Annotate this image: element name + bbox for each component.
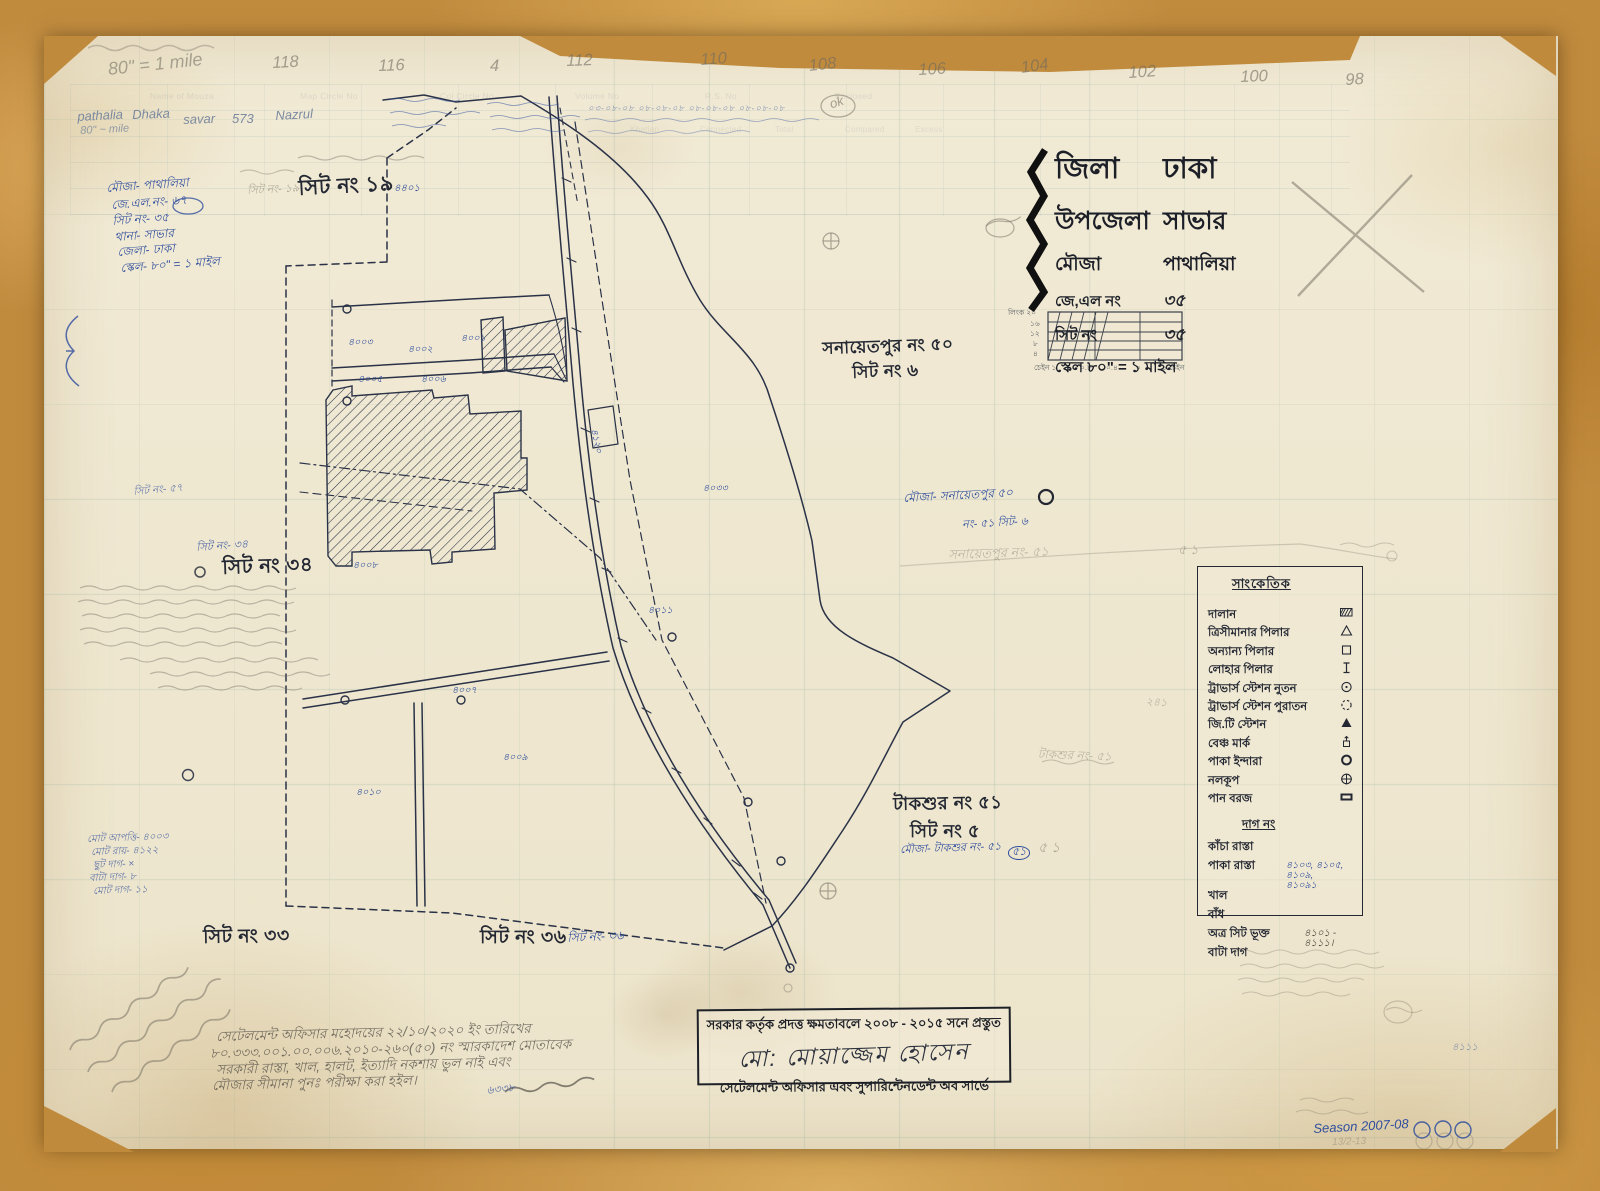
form-number: 573 xyxy=(232,112,254,126)
ghost-col-2: Map Circle No xyxy=(300,92,358,101)
title-label: মৌজা xyxy=(1055,250,1163,282)
grid-sheet-number: 106 xyxy=(918,61,946,80)
legend-road-item: খাল xyxy=(1208,889,1354,904)
legend-item: ত্রিসীমানার পিলার xyxy=(1208,624,1354,642)
legend-item: পান বরজ xyxy=(1208,790,1354,808)
legend-road-item: অত্র সিট ভূক্ত৪১০১ - ৪১১১। xyxy=(1208,927,1354,942)
form-upazila: savar xyxy=(183,112,215,127)
pencil-51: ৫ ১ xyxy=(1178,543,1198,557)
title-rows: জিলাঢাকাউপজেলাসাভারমৌজাপাথালিয়াজে,এল নং… xyxy=(1055,146,1315,350)
legend-item: ট্রাভার্স স্টেশন নুতন xyxy=(1208,680,1354,698)
legend-item-label: জি.টি স্টেশন xyxy=(1208,718,1266,732)
title-block: জিলাঢাকাউপজেলাসাভারমৌজাপাথালিয়াজে,এল নং… xyxy=(1055,146,1315,381)
ghost-col-10: Compared xyxy=(845,126,885,134)
legend-road-item: বাঁধ xyxy=(1208,908,1354,923)
pencil-241: ২৪১ xyxy=(1145,697,1167,710)
legend-road-item: বাটা দাগ xyxy=(1208,946,1354,961)
title-label: জে,এল নং xyxy=(1055,290,1163,315)
legend-item-label: বেঞ্চ মার্ক xyxy=(1208,737,1250,751)
sheet33-label: সিট নং ৩৩ xyxy=(203,926,290,947)
title-value: পাথালিয়া xyxy=(1163,250,1236,282)
stamp-box: সরকার কর্তৃক প্রদত্ত ক্ষমতাবলে ২০০৮ - ২০… xyxy=(697,1007,1012,1086)
grid-sheet-number: 98 xyxy=(1345,71,1364,89)
blue-4111: ৪১১১ xyxy=(1452,1043,1478,1054)
legend-road-label: খাল xyxy=(1208,890,1227,902)
ghost-col-7: Khatian xyxy=(630,126,659,134)
scalebar-l4: ৮ xyxy=(1033,340,1038,348)
ghost-col-3: Col Circle No xyxy=(440,92,494,101)
form-mouza: pathalia xyxy=(77,108,123,124)
sheet36-label: সিট নং ৩৬ xyxy=(480,928,567,948)
title-scale-line: স্কেল ৮০" = ১ মাইল xyxy=(1055,356,1315,381)
plot-number: ৪০০৩ xyxy=(348,338,373,348)
legend-item: অন্যান্য পিলার xyxy=(1208,643,1354,661)
plot-number: ৪০০২ xyxy=(408,345,433,355)
grid-sheet-number: 110 xyxy=(700,50,727,69)
season-pencil: 13/2-13 xyxy=(1332,1137,1366,1149)
title-row: জিলাঢাকা xyxy=(1055,146,1315,195)
legend-item-label: পাকা ইন্দারা xyxy=(1208,755,1262,769)
legend-items: দালানত্রিসীমানার পিলারঅন্যান্য পিলারলোহা… xyxy=(1208,606,1354,808)
ghost-col-11: Excess xyxy=(915,126,943,134)
grid-sheet-number: 112 xyxy=(566,52,593,70)
plot-number: ৪০০১ xyxy=(461,334,486,344)
plot-number: ৪০৩৩ xyxy=(703,484,728,494)
grid-sheet-number: 4 xyxy=(490,58,499,75)
legend-item-label: ট্রাভার্স স্টেশন নুতন xyxy=(1208,682,1297,696)
takshur-pencil: টাকশুর নং- ৫১ xyxy=(1038,748,1112,763)
legend-box: সাংকেতিক দালানত্রিসীমানার পিলারঅন্যান্য … xyxy=(1197,566,1363,916)
stamp-signature: মো: মোয়াজ্জেম হোসেন xyxy=(699,1032,1010,1082)
title-row: মৌজাপাথালিয়া xyxy=(1055,250,1315,282)
takshur-51-pencil: ৫ ১ xyxy=(1038,840,1060,855)
legend-item-label: ট্রাভার্স স্টেশন পুরাতন xyxy=(1208,700,1307,714)
blue-list-5: মোট দাগ- ১১ xyxy=(93,885,148,897)
bm-icon xyxy=(1339,735,1354,749)
legend-item-label: অন্যান্য পিলার xyxy=(1208,645,1274,659)
plot-number: ৪০০৭ xyxy=(452,686,477,696)
plot-number: ৪০০৯ xyxy=(503,753,528,763)
title-label: উপজেলা xyxy=(1055,201,1163,244)
title-value: ঢাকা xyxy=(1163,146,1217,195)
legend-road-items: কাঁচা রাস্তাপাকা রাস্তা৪১০৩, ৪১০৫, ৪১০৯,… xyxy=(1208,840,1354,961)
grid-sheet-number: 116 xyxy=(378,57,405,75)
legend-road-label: অত্র সিট ভূক্ত xyxy=(1208,928,1270,940)
title-row: উপজেলাসাভার xyxy=(1055,201,1315,244)
legend-item-label: ত্রিসীমানার পিলার xyxy=(1208,626,1289,640)
legend-item: বেঞ্চ মার্ক xyxy=(1208,735,1354,753)
grid-sheet-number: 108 xyxy=(808,55,837,75)
title-value: ৩৫ xyxy=(1163,322,1185,350)
takshur-51-circled: ৫১ xyxy=(1008,846,1030,860)
legend-road-label: বাটা দাগ xyxy=(1208,947,1247,959)
takshur-label: টাকশুর নং ৫১ xyxy=(893,793,1003,814)
scalebar-l3: ১২ xyxy=(1030,330,1040,338)
legend-road-label: পাকা রাস্তা xyxy=(1208,860,1255,872)
stamp-line3: সেটেলমেন্ট অফিসার এবং সুপারিন্টেনডেন্ট অ… xyxy=(699,1077,1009,1101)
scalebar-b1: চেইন ১ xyxy=(1034,364,1056,372)
blue-list-4: বাটা দাগ- ৮ xyxy=(89,872,136,884)
plot-number: ৪০০৫ xyxy=(358,375,383,385)
legend-item-label: লোহার পিলার xyxy=(1208,663,1273,677)
sheet36-blue: সিট নং- ৩৬ xyxy=(567,929,624,945)
cdot-icon xyxy=(1339,680,1354,694)
ibeam-icon xyxy=(1339,661,1354,675)
legend-item: লোহার পিলার xyxy=(1208,661,1354,679)
cbold-icon xyxy=(1339,753,1354,767)
title-value: সাভার xyxy=(1163,201,1226,244)
title-label: সিট নং xyxy=(1055,324,1163,349)
ghost-col-1: Name of Mouza xyxy=(150,92,214,101)
trif-icon xyxy=(1339,716,1354,730)
plot-number: ৪০০৮ xyxy=(353,561,378,571)
blue-list-3: ছুট দাগ- × xyxy=(93,860,134,872)
scalebar-l2: ১৬ xyxy=(1030,320,1040,328)
scanned-cadastral-map: { "colors":{"board":"#c18b3e","paper":"#… xyxy=(0,0,1600,1191)
title-label: জিলা xyxy=(1055,146,1163,195)
title-value: ৩৫ xyxy=(1163,288,1185,316)
legend-dag-header: দাগ নং xyxy=(1242,816,1354,836)
sheet34-label: সিট নং ৩৪ xyxy=(222,555,314,579)
legend-item-label: পান বরজ xyxy=(1208,792,1252,806)
ghost-col-4: Volume No xyxy=(575,92,619,101)
ghost-col-8: Connected xyxy=(700,126,741,134)
hatch-icon xyxy=(1339,606,1354,620)
plot-number: ৪০১১ xyxy=(648,606,673,616)
cdash-icon xyxy=(1339,698,1354,712)
blue-dates: ০৩-০৮-০৮ ০৮-০৮-০৮ ০৮-০৮-০৮ ০৮-০৮-০৮ xyxy=(588,104,785,113)
legend-road-note: ৪১০৩, ৪১০৫, ৪১০৯,৪১০৯১ xyxy=(1286,861,1354,891)
form-name: Nazrul xyxy=(275,107,313,123)
legend-road-item: কাঁচা রাস্তা xyxy=(1208,840,1354,855)
scalebar-l1: লিংক ২০ xyxy=(1008,309,1036,317)
legend-road-label: বাঁধ xyxy=(1208,909,1224,921)
legend-item-label: নলকূপ xyxy=(1208,774,1239,788)
ghost-col-9: Total xyxy=(775,126,793,134)
takshur-sheet: সিট নং ৫ xyxy=(910,822,980,841)
legend-title: সাংকেতিক xyxy=(1232,575,1354,596)
plot-4401: ৪৪০১ xyxy=(394,184,420,195)
legend-road-item: পাকা রাস্তা৪১০৩, ৪১০৫, ৪১০৯,৪১০৯১ xyxy=(1208,859,1354,885)
legend-road-label: কাঁচা রাস্তা xyxy=(1208,841,1253,853)
form-district: Dhaka xyxy=(132,107,170,122)
legend-item-label: দালান xyxy=(1208,608,1236,622)
legend-item: ট্রাভার্স স্টেশন পুরাতন xyxy=(1208,698,1354,716)
rfill-icon xyxy=(1339,790,1354,804)
legend-item: নলকূপ xyxy=(1208,772,1354,790)
legend-item: পাকা ইন্দারা xyxy=(1208,753,1354,771)
plot-number: ৪০১০ xyxy=(356,788,381,798)
ccross-icon xyxy=(1339,772,1354,786)
title-row: জে,এল নং৩৫ xyxy=(1055,288,1315,316)
sonayetpur-sheet: সিট নং ৬ xyxy=(852,362,919,382)
scalebar-l5: ৪ xyxy=(1033,350,1038,358)
title-row: সিট নং৩৫ xyxy=(1055,322,1315,350)
ghost-col-5: R.S. No xyxy=(705,92,737,101)
plot-number: ৪০০৬ xyxy=(421,375,446,385)
grid-sheet-number: 100 xyxy=(1240,68,1268,86)
tri-icon xyxy=(1339,624,1354,638)
legend-item: দালান xyxy=(1208,606,1354,624)
sq-icon xyxy=(1339,643,1354,657)
grid-sheet-number: 102 xyxy=(1128,63,1157,82)
legend-item: জি.টি স্টেশন xyxy=(1208,716,1354,734)
grid-sheet-number: 118 xyxy=(272,54,299,73)
